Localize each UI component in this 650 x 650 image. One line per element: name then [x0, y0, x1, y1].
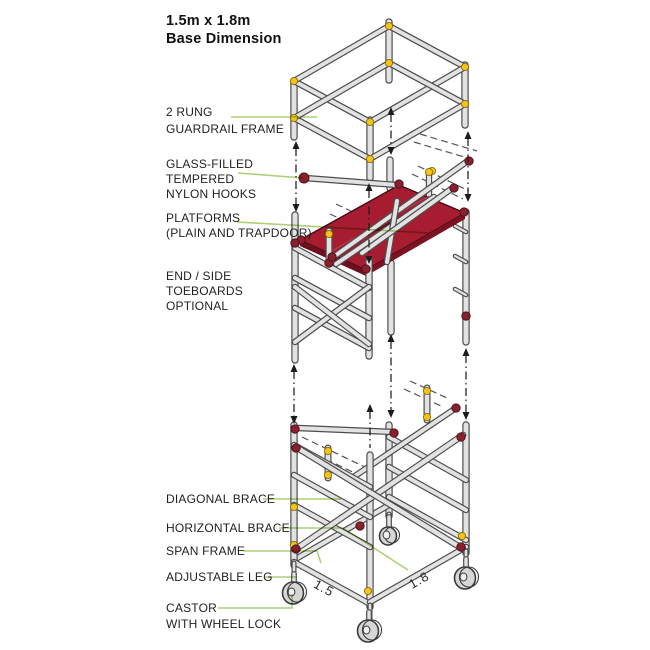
tube — [294, 118, 370, 159]
yellow-clip-icon — [324, 447, 331, 454]
yellow-clip-icon — [385, 59, 392, 66]
red-clamp-icon — [460, 208, 468, 216]
red-clamp-icon — [462, 312, 470, 320]
red-clamp-icon — [452, 404, 460, 412]
label-toeboards: END / SIDE TOEBOARDS OPTIONAL — [166, 269, 243, 314]
arrow-up-icon — [291, 364, 298, 372]
yellow-clip-icon — [461, 100, 468, 107]
castor-hub-icon — [363, 626, 370, 634]
red-clamp-icon — [292, 444, 300, 452]
arrow-down-icon — [463, 412, 470, 420]
arrow-up-icon — [293, 141, 300, 149]
castor-hub-icon — [460, 573, 467, 581]
tube — [389, 26, 465, 67]
label-horizontal-brace: HORIZONTAL BRACE — [166, 521, 290, 537]
arrow-down-icon — [388, 410, 395, 418]
arrow-up-icon — [465, 131, 472, 139]
castor-hub-icon — [383, 531, 390, 539]
hidden-edge-line — [414, 142, 471, 159]
yellow-clip-icon — [423, 413, 430, 420]
hidden-edge-line — [404, 389, 441, 406]
yellow-clip-icon — [290, 77, 297, 84]
red-clamp-icon — [328, 253, 336, 261]
yellow-clip-icon — [325, 230, 332, 237]
red-clamp-icon — [395, 180, 403, 188]
yellow-clip-icon — [290, 503, 297, 510]
yellow-clip-icon — [458, 532, 465, 539]
arrow-up-icon — [388, 334, 395, 342]
yellow-clip-icon — [290, 114, 297, 121]
yellow-clip-icon — [385, 22, 392, 29]
scaffold-assembly-diagram: 1.5m x 1.8m Base Dimension 2 RUNG GUARDR… — [0, 0, 650, 650]
yellow-clip-icon — [324, 471, 331, 478]
label-nylon-hooks: GLASS-FILLED TEMPERED NYLON HOOKS — [166, 157, 256, 202]
yellow-clip-icon — [366, 155, 373, 162]
red-clamp-icon — [390, 429, 398, 437]
red-clamp-icon — [356, 522, 364, 530]
scaffold-drawing — [0, 0, 650, 650]
label-adjustable-leg: ADJUSTABLE LEG — [166, 570, 273, 586]
yellow-clip-icon — [364, 587, 371, 594]
red-clamp-icon — [465, 157, 473, 165]
red-clamp-icon — [450, 184, 458, 192]
red-clamp-icon — [457, 543, 465, 551]
yellow-clip-icon — [366, 118, 373, 125]
yellow-clip-icon — [425, 168, 432, 175]
red-clamp-icon — [292, 545, 300, 553]
label-span-frame: SPAN FRAME — [166, 544, 245, 560]
yellow-clip-icon — [423, 387, 430, 394]
page-title: 1.5m x 1.8m Base Dimension — [166, 12, 282, 48]
red-clamp-icon — [291, 425, 299, 433]
arrow-down-icon — [465, 194, 472, 202]
label-platforms: PLATFORMS (PLAIN AND TRAPDOOR) — [166, 211, 312, 241]
label-guardrail-frame: 2 RUNG GUARDRAIL FRAME — [166, 104, 284, 137]
tube — [389, 63, 465, 104]
yellow-clip-icon — [461, 63, 468, 70]
arrow-up-icon — [463, 348, 470, 356]
tube — [294, 81, 370, 122]
red-clamp-icon — [457, 433, 465, 441]
label-castor: CASTOR WITH WHEEL LOCK — [166, 601, 281, 632]
red-clamp-icon — [362, 265, 370, 273]
label-diagonal-brace: DIAGONAL BRACE — [166, 492, 275, 508]
arrow-up-icon — [367, 404, 374, 412]
